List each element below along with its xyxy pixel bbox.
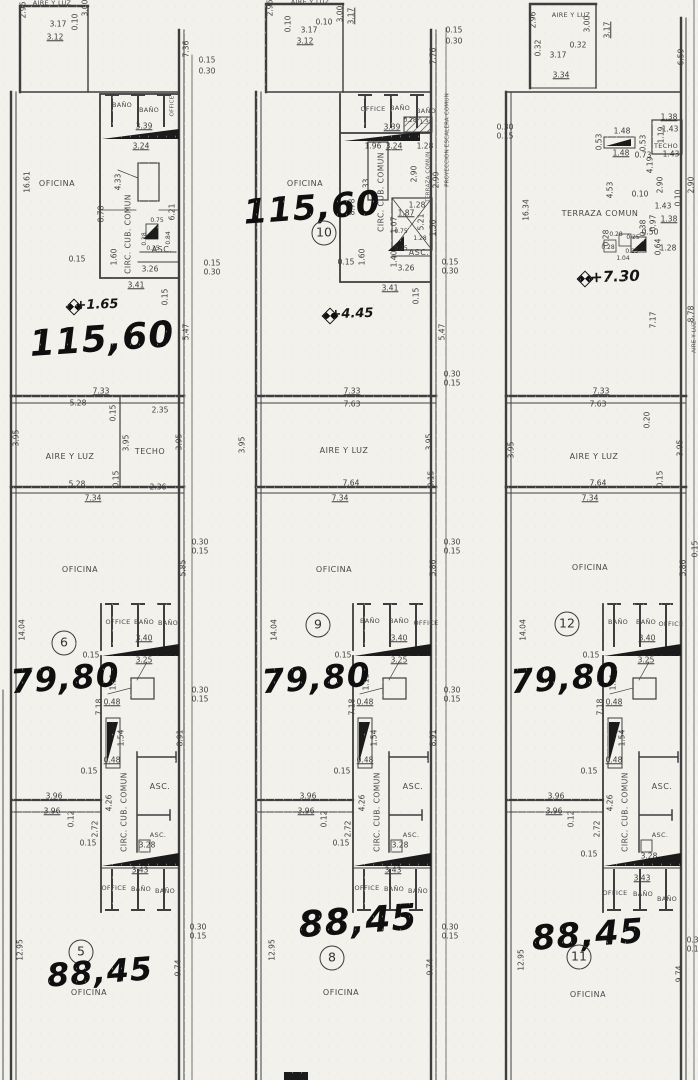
dimension-label: 8.78	[97, 206, 105, 223]
room-label: ASC.	[403, 832, 419, 839]
dimension-label: 3.24	[386, 142, 403, 150]
room-label: BAÑO	[416, 108, 436, 115]
dimension-label: 0.30	[192, 686, 209, 694]
dimension-label: 7.33	[593, 387, 610, 395]
dimension-label: 3.00	[583, 16, 591, 33]
handwritten-area-note: 88,45	[46, 952, 154, 991]
unit-number-badge: 12	[555, 612, 580, 637]
dimension-label: 4.26	[606, 795, 614, 812]
dimension-label: 0.28	[142, 232, 148, 245]
dimension-label: 0.15	[442, 258, 459, 266]
room-label: ASC.	[409, 249, 430, 257]
dimension-label: 0.10	[316, 18, 333, 26]
unit-number-badge: 10	[312, 221, 337, 246]
dimension-label: 0.12	[67, 811, 75, 828]
room-label: AIRE Y LUZ	[570, 453, 619, 461]
dimension-label: 0.48	[104, 698, 121, 706]
handwritten-area-note: 79,80	[260, 658, 371, 699]
dimension-label: 3.41	[128, 281, 145, 289]
dimension-label: 3.24	[133, 142, 150, 150]
dimension-label: 3.28	[392, 841, 409, 849]
dimension-label: 5.28	[70, 399, 87, 407]
dimension-label: 3.25	[391, 656, 408, 664]
dimension-label: 0.15	[204, 259, 221, 267]
room-label: BAÑO	[112, 102, 132, 109]
handwritten-area-note: 115,60	[242, 186, 381, 229]
room-label: BAÑO	[608, 619, 628, 626]
dimension-label: 1.43	[662, 125, 679, 133]
dimension-label: 0.15	[199, 56, 216, 64]
dimension-label: 1.28	[413, 236, 426, 242]
dimension-label: 3.17	[603, 22, 611, 39]
room-label: CIRC. CUB. COMUN	[120, 772, 128, 852]
dimension-label: 1.54	[117, 730, 125, 747]
room-label: AIRE Y LUZ	[692, 321, 698, 353]
dimension-label: 7.33	[344, 387, 361, 395]
dimension-label: 0.15	[444, 379, 461, 387]
dimension-label: 0.30	[199, 67, 216, 75]
dimension-label: 0.10	[632, 190, 649, 198]
dimension-label: 7.18	[348, 699, 356, 716]
room-label: OFICINA	[39, 180, 75, 188]
dimension-label: 7.36	[182, 41, 190, 58]
dimension-label: 3.95	[507, 442, 515, 459]
dimension-label: 1.04	[616, 256, 629, 262]
unit-number-badge: 8	[320, 946, 345, 971]
dimension-label: 0.48	[104, 756, 121, 764]
dimension-label: 0.15	[446, 26, 463, 34]
dimension-label: 0.32	[570, 41, 587, 49]
dimension-label: 0.15	[69, 255, 86, 263]
dimension-label: 4.33	[114, 174, 122, 191]
room-label: OFFICE	[355, 885, 380, 892]
dimension-label: 0.30	[442, 267, 459, 275]
dimension-label: 3.28	[139, 841, 156, 849]
dimension-label: 5.85	[179, 560, 187, 577]
dimension-label: 3.43	[634, 874, 651, 882]
room-label: BAÑO	[389, 618, 409, 625]
handwritten-area-note: +1.65	[75, 298, 118, 312]
dimension-label: 2.96	[266, 0, 274, 16]
dimension-label: 12.95	[268, 939, 276, 960]
dimension-label: 3.17	[50, 20, 67, 28]
dimension-label: 0.15	[427, 471, 435, 488]
dimension-label: 3.95	[676, 440, 684, 457]
dimension-label: 3.26	[398, 264, 415, 272]
dimension-label: 1.28	[417, 142, 434, 150]
dimension-label: 4.53	[606, 182, 614, 199]
dimension-label: 0.15	[80, 839, 97, 847]
room-label: BAÑO	[158, 620, 178, 627]
dimension-label: 1.96	[365, 142, 382, 150]
dimension-label: 0.75	[394, 229, 407, 235]
room-label: OFICINA	[71, 989, 107, 997]
floor-plan-scan: AIRE Y LUZ2.963.000.103.173.127.360.150.…	[0, 0, 698, 1080]
dimension-label: 0.30	[190, 923, 207, 931]
dimension-label: 0.84	[166, 231, 172, 244]
dimension-label: 3.96	[548, 792, 565, 800]
room-label: OFFICE	[361, 106, 386, 113]
dimension-label: 1.40	[390, 251, 398, 268]
room-label: ASC.	[403, 783, 424, 791]
dimension-label: 3.34	[553, 71, 570, 79]
room-label: BAÑO	[384, 886, 404, 893]
room-label: OFICINA	[570, 991, 606, 999]
dimension-label: 5.21	[417, 214, 425, 231]
dimension-label: 3.25	[136, 656, 153, 664]
dimension-label: 0.30	[497, 123, 514, 131]
dimension-label: 3.43	[385, 866, 402, 874]
dimension-label: 3.96	[298, 807, 315, 815]
dimension-label: 3.12	[297, 37, 314, 45]
dimension-label: 0.12	[567, 811, 575, 828]
dimension-label: 1.38	[419, 120, 432, 126]
dimension-label: 0.10	[674, 190, 682, 207]
dimension-label: 4.19	[646, 157, 654, 174]
dimension-label: 12.95	[517, 949, 525, 970]
dimension-label: 7.64	[343, 479, 360, 487]
dimension-label: 1.38	[661, 113, 678, 121]
room-label: ASC.	[150, 783, 171, 791]
dimension-label: 3.95	[238, 437, 246, 454]
dimension-label: 0.50	[642, 228, 659, 236]
dimension-label: 3.25	[638, 656, 655, 664]
room-label: BAÑO	[633, 891, 653, 898]
dimension-label: 0.15	[192, 547, 209, 555]
dimension-label: 1.28	[660, 244, 677, 252]
dimension-label: 3.40	[136, 634, 153, 642]
dimension-label: 3.17	[301, 26, 318, 34]
handwritten-area-note: 79,80	[9, 658, 120, 699]
dimension-label: 0.30	[204, 268, 221, 276]
room-label: OFICINA	[316, 566, 352, 574]
annotation-layer: AIRE Y LUZ2.963.000.103.173.127.360.150.…	[0, 0, 698, 1080]
dimension-label: 6.21	[168, 204, 176, 221]
dimension-label: 3.40	[391, 634, 408, 642]
room-label: OFFICE	[414, 620, 439, 627]
dimension-label: 5.86	[429, 560, 437, 577]
room-label: BAÑO	[657, 896, 677, 903]
dimension-label: 0.15	[687, 945, 698, 953]
room-label: BAÑO	[360, 618, 380, 625]
dimension-label: 7.33	[93, 387, 110, 395]
dimension-label: 1.43	[663, 150, 680, 158]
dimension-label: 0.20	[643, 412, 651, 429]
room-label: BAÑO	[155, 888, 175, 895]
dimension-label: 3.39	[136, 122, 153, 130]
dimension-label: 0.30	[444, 686, 461, 694]
dimension-label: 14.04	[519, 619, 527, 640]
dimension-label: 3.95	[425, 434, 433, 451]
dimension-label: 3.96	[300, 792, 317, 800]
dimension-label: 0.53	[595, 134, 603, 151]
dimension-label: 0.15	[412, 288, 420, 305]
dimension-label: 3.41	[382, 284, 399, 292]
room-label: ASC.	[652, 783, 673, 791]
dimension-label: 0.15	[338, 258, 355, 266]
dimension-label: 14.04	[270, 619, 278, 640]
room-label: OFFICE	[603, 890, 628, 897]
dimension-label: 8.78	[687, 306, 695, 323]
room-label: CIRC. CUB. COMUN	[124, 194, 132, 274]
dimension-label: 0.15	[190, 932, 207, 940]
dimension-label: 8.91	[429, 730, 437, 747]
dimension-label: 0.15	[444, 695, 461, 703]
dimension-label: 4.26	[358, 795, 366, 812]
room-label: BAÑO	[408, 888, 428, 895]
dimension-label: 5.28	[69, 480, 86, 488]
dimension-label: 0.12	[320, 811, 328, 828]
dimension-label: 6.59	[677, 49, 685, 66]
dimension-label: 0.15	[444, 547, 461, 555]
room-label: ASC.	[152, 246, 173, 254]
room-label: OFFICE	[106, 619, 131, 626]
dimension-label: 1.54	[618, 730, 626, 747]
dimension-label: 16.34	[522, 199, 530, 220]
dimension-label: 0.28	[609, 232, 622, 238]
dimension-label: 1.56	[429, 220, 437, 237]
dimension-label: 5.86	[679, 560, 687, 577]
dimension-label: 7.76	[429, 48, 437, 65]
room-label: BAÑO	[390, 105, 410, 112]
dimension-label: 2.90	[432, 172, 440, 189]
dimension-label: 5.47	[438, 324, 446, 341]
dimension-label: 1.60	[110, 249, 118, 266]
unit-number-badge: 11	[567, 945, 592, 970]
dimension-label: 14.04	[18, 619, 26, 640]
dimension-label: 0.15	[656, 471, 664, 488]
room-label: AIRE Y LUZ	[320, 447, 369, 455]
dimension-label: 3.43	[132, 866, 149, 874]
dimension-label: 7.34	[85, 494, 102, 502]
dimension-label: 0.10	[71, 14, 79, 31]
dimension-label: 1.87	[398, 209, 415, 217]
dimension-label: 7.63	[590, 400, 607, 408]
dimension-label: 3.00	[336, 6, 344, 23]
dimension-label: 7.18	[596, 699, 604, 716]
room-label: BAÑO	[636, 619, 656, 626]
dimension-label: 1.43	[655, 202, 672, 210]
dimension-label: 1.38	[661, 215, 678, 223]
dimension-label: 4.26	[105, 795, 113, 812]
dimension-label: 3.95	[12, 430, 20, 447]
dimension-label: 2.90	[410, 166, 418, 183]
dimension-label: 3.95	[175, 434, 183, 451]
dimension-label: 3.17	[347, 8, 355, 25]
dimension-label: 7.34	[582, 494, 599, 502]
room-label: AIRE Y LUZ	[291, 0, 329, 5]
room-label: TERRAZA COMUN	[562, 210, 639, 218]
dimension-label: 9.74	[174, 960, 182, 977]
dimension-label: 0.30	[444, 370, 461, 378]
room-label: ASC.	[150, 832, 166, 839]
dimension-label: 0.48	[357, 698, 374, 706]
dimension-label: 12.95	[16, 939, 24, 960]
dimension-label: 3.96	[46, 792, 63, 800]
dimension-label: 2.36	[150, 483, 167, 491]
dimension-label: 0.15	[81, 767, 98, 775]
room-label: OFICINA	[323, 989, 359, 997]
dimension-label: 7.63	[344, 400, 361, 408]
dimension-label: 0.48	[606, 698, 623, 706]
dimension-label: 0.53	[639, 135, 647, 152]
dimension-label: 9.74	[426, 959, 434, 976]
dimension-label: 0.28	[403, 118, 416, 124]
dimension-label: 0.15	[161, 289, 169, 306]
room-label: OFICINA	[572, 564, 608, 572]
dimension-label: 2.72	[593, 821, 601, 838]
dimension-label: 1.54	[370, 730, 378, 747]
dimension-label: 0.30	[687, 936, 698, 944]
room-label: BAÑO	[134, 619, 154, 626]
room-label: AIRE Y LUZ	[46, 453, 95, 461]
dimension-label: 0.15	[333, 839, 350, 847]
dimension-label: 3.28	[641, 852, 658, 860]
dimension-label: 0.15	[497, 132, 514, 140]
dimension-label: 0.15	[112, 471, 120, 488]
room-label: AIRE Y LUZ	[33, 0, 71, 6]
room-label: BAÑO	[139, 107, 159, 114]
room-label: TECHO	[135, 448, 165, 456]
dimension-label: 7.17	[649, 312, 657, 329]
dimension-label: 0.15	[581, 767, 598, 775]
dimension-label: 7.34	[332, 494, 349, 502]
dimension-label: 0.15	[192, 695, 209, 703]
dimension-label: 0.30	[446, 37, 463, 45]
room-label: OFFICE	[170, 96, 176, 117]
dimension-label: 3.96	[546, 807, 563, 815]
room-label: CIRC. CUB. COMUN	[373, 772, 381, 852]
dimension-label: 0.30	[442, 923, 459, 931]
dimension-label: 2.72	[91, 821, 99, 838]
dimension-label: 0.48	[357, 756, 374, 764]
dimension-label: 3.96	[44, 807, 61, 815]
dimension-label: 0.10	[284, 16, 292, 33]
dimension-label: 9.74	[675, 966, 683, 983]
dimension-label: 3.12	[47, 33, 64, 41]
dimension-label: 1.60	[358, 249, 366, 266]
dimension-label: 1.48	[614, 127, 631, 135]
dimension-label: 5.47	[182, 324, 190, 341]
dimension-label: 2.90	[656, 177, 664, 194]
dimension-label: 2.90	[687, 177, 695, 194]
dimension-label: 0.28	[601, 245, 614, 251]
dimension-label: 0.32	[534, 40, 542, 57]
dimension-label: 2.72	[344, 821, 352, 838]
unit-number-badge: 9	[306, 613, 331, 638]
dimension-label: 0.75	[150, 218, 163, 224]
room-label: OFFICE	[102, 885, 127, 892]
dimension-label: 0.25	[626, 235, 639, 241]
dimension-label: 3.95	[122, 435, 130, 452]
dimension-label: 0.15	[691, 541, 698, 558]
dimension-label: 1.48	[613, 149, 630, 157]
dimension-label: 3.00	[81, 0, 89, 16]
room-label: CIRC. CUB. COMUN	[621, 772, 629, 852]
room-label: BAÑO	[131, 886, 151, 893]
dimension-label: 0.15	[109, 405, 117, 422]
dimension-label: 16.61	[23, 171, 31, 192]
room-label: PROYECCION ESCALERA COMUN	[445, 93, 451, 187]
handwritten-area-note: 88,45	[297, 900, 418, 944]
dimension-label: 8.91	[176, 730, 184, 747]
dimension-label: 3.39	[384, 123, 401, 131]
dimension-label: 7.64	[590, 479, 607, 487]
dimension-label: 2.35	[152, 406, 169, 414]
dimension-label: 3.26	[142, 265, 159, 273]
room-label: OFFICE	[659, 621, 684, 628]
dimension-label: 3.40	[639, 634, 656, 642]
dimension-label: 0.15	[334, 767, 351, 775]
handwritten-area-note: 79,80	[509, 658, 620, 699]
room-label: ASC.	[652, 832, 668, 839]
handwritten-area-note: +7.30	[590, 269, 640, 286]
dimension-label: 0.30	[192, 538, 209, 546]
dimension-label: 0.15	[442, 932, 459, 940]
handwritten-area-note: 115,60	[28, 317, 175, 363]
dimension-label: 7.18	[95, 699, 103, 716]
dimension-label: 3.17	[550, 51, 567, 59]
dimension-label: 0.30	[444, 538, 461, 546]
dimension-label: 2.96	[529, 12, 537, 29]
dimension-label: 0.15	[581, 850, 598, 858]
unit-number-badge: 6	[52, 631, 77, 656]
room-label: OFICINA	[62, 566, 98, 574]
dimension-label: 2.96	[19, 2, 27, 19]
dimension-label: 0.48	[606, 756, 623, 764]
